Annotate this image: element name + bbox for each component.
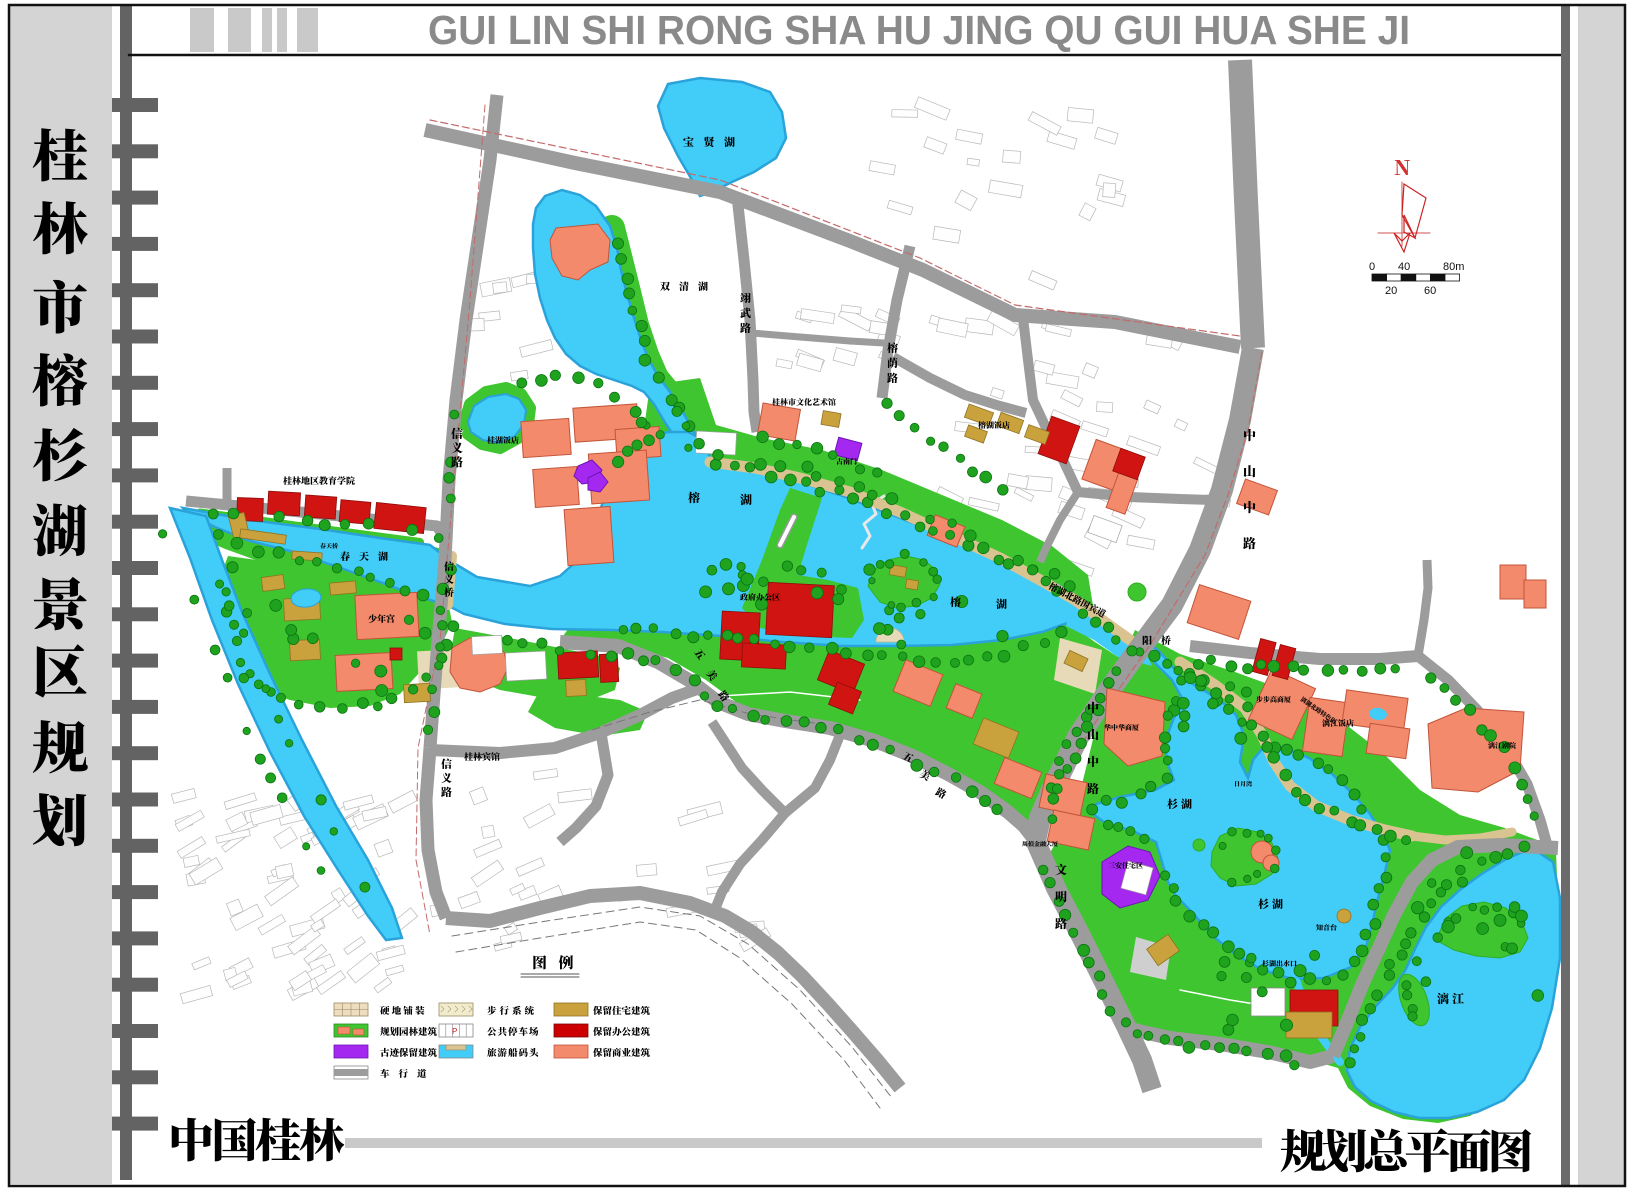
svg-text:80m: 80m xyxy=(1443,261,1464,273)
svg-text:20: 20 xyxy=(1385,285,1397,297)
svg-text:60: 60 xyxy=(1424,285,1436,297)
svg-text:0: 0 xyxy=(1369,261,1375,273)
svg-text:GUI LIN SHI RONG SHA HU JING Q: GUI LIN SHI RONG SHA HU JING QU GUI HUA … xyxy=(428,7,1410,53)
svg-text:P: P xyxy=(452,1027,457,1036)
svg-text:40: 40 xyxy=(1398,261,1410,273)
